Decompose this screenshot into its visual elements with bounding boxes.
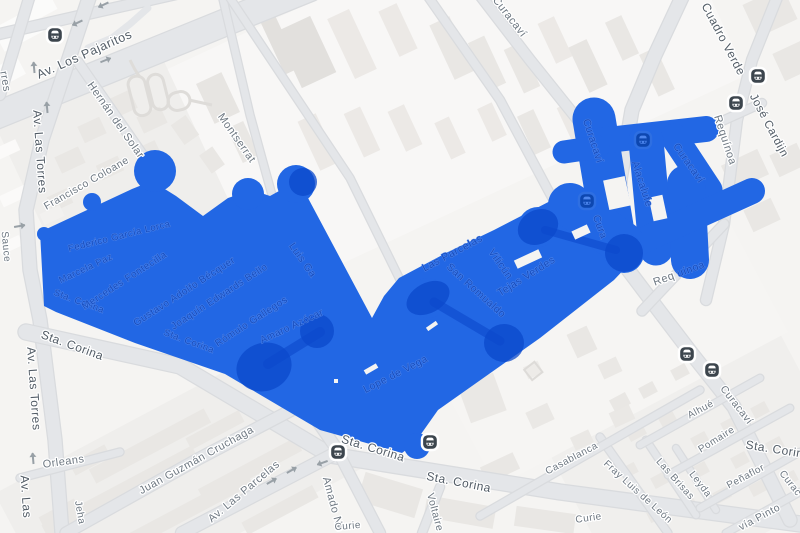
svg-text:Curie: Curie <box>334 520 361 533</box>
svg-text:Sauce: Sauce <box>0 231 12 263</box>
